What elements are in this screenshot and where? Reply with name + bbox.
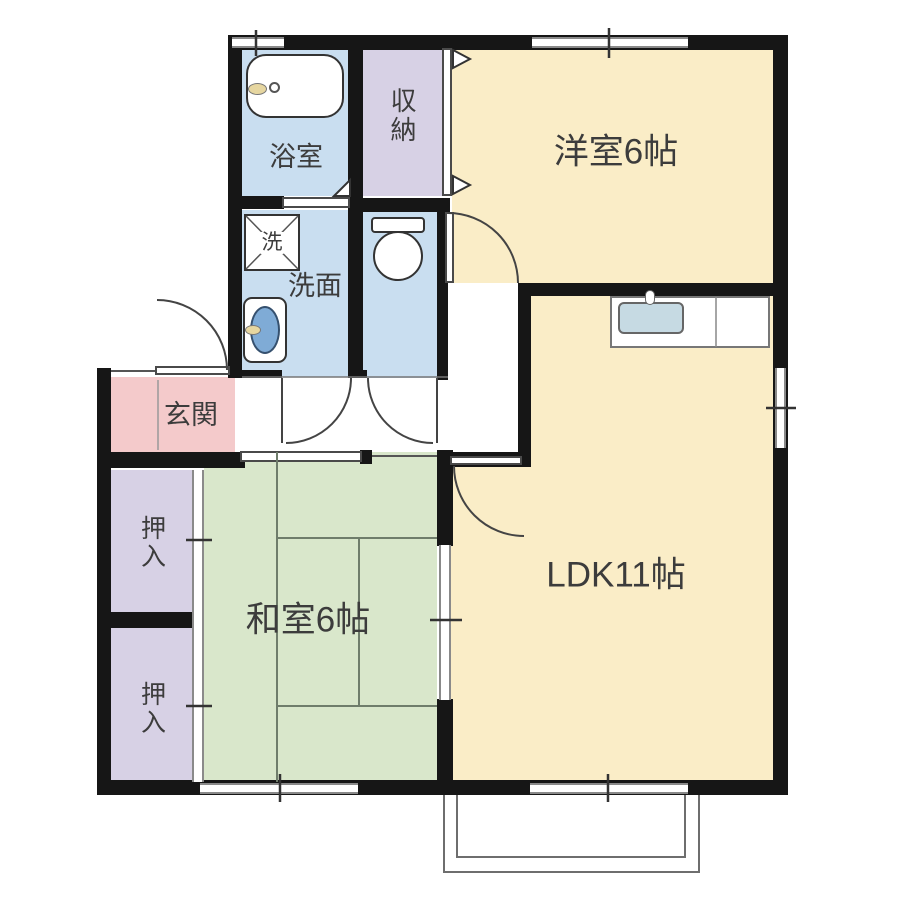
label-closet-upper: 押入	[139, 515, 164, 571]
label-western: 洋室6帖	[554, 135, 678, 172]
label-closet-lower: 押入	[139, 681, 164, 737]
label-japanese: 和室6帖	[246, 603, 370, 640]
floor-plan: 浴室 収納 洋室6帖 洗 洗面 玄関 押入 押入 和室6帖 LDK11帖	[0, 0, 900, 900]
label-ldk: LDK11帖	[546, 558, 685, 595]
plan-linework	[0, 0, 900, 900]
label-entrance: 玄関	[164, 401, 218, 429]
entrance-door-arc	[157, 300, 227, 370]
toilet-door-arc	[368, 378, 433, 443]
western-door-arc	[448, 213, 518, 283]
storage-door-triangle	[453, 50, 470, 68]
storage-door-triangle	[453, 176, 470, 194]
label-washroom: 洗面	[288, 272, 342, 300]
ldk-door-arc	[454, 466, 524, 536]
label-bath: 浴室	[269, 143, 323, 171]
washroom-door-arc	[286, 378, 351, 443]
label-washer: 洗	[261, 232, 284, 254]
bath-door-triangle	[334, 180, 350, 196]
label-storage: 収納	[389, 87, 415, 145]
